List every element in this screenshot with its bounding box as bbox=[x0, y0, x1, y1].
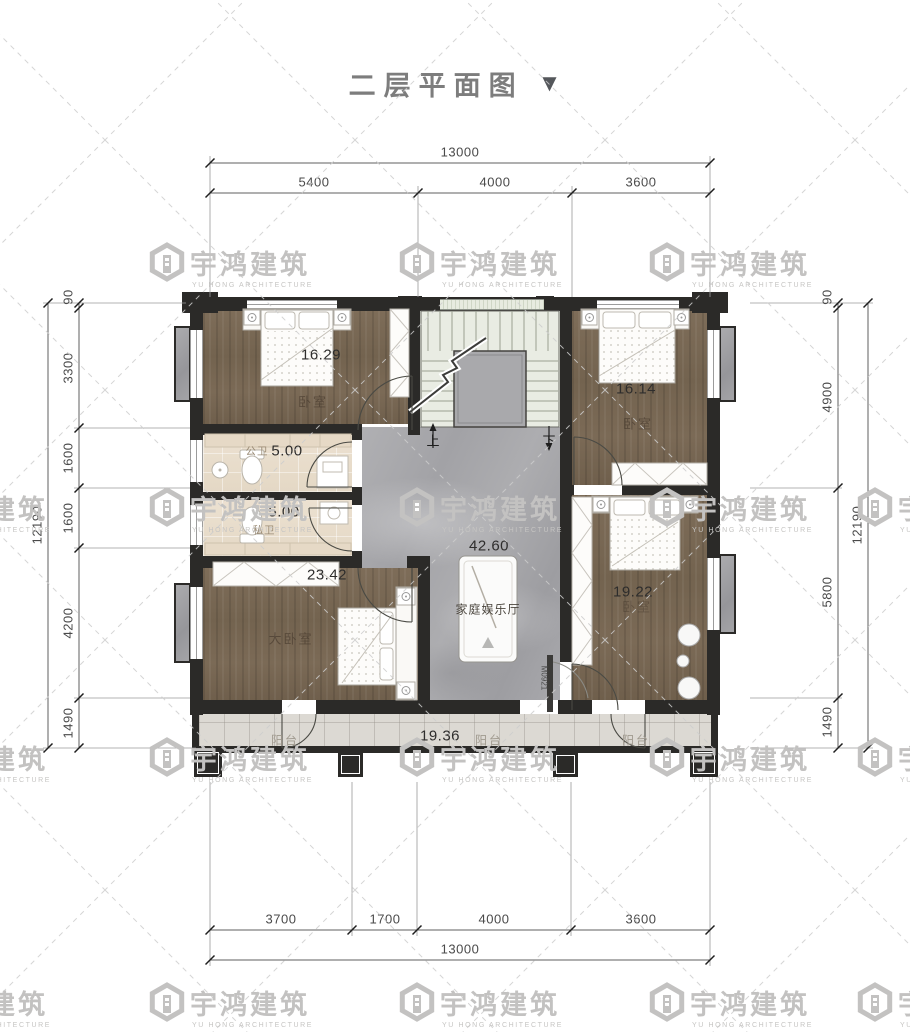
window-right-bedroom-br bbox=[707, 558, 720, 630]
dim-left-seg3: 1600 bbox=[61, 443, 76, 474]
column-2 bbox=[338, 752, 363, 777]
label-family-room: 家庭娱乐厅 bbox=[455, 601, 520, 618]
dim-bottom-seg3: 4000 bbox=[479, 912, 510, 927]
column-1 bbox=[194, 749, 222, 777]
dim-right-seg1: 90 bbox=[820, 289, 835, 304]
dim-left-seg4: 1600 bbox=[61, 503, 76, 534]
dim-top-seg2: 4000 bbox=[480, 175, 511, 190]
label-bedroom-top-left: 卧室 bbox=[298, 392, 328, 411]
dim-left-seg6: 1490 bbox=[61, 708, 76, 739]
dim-right-seg3: 5800 bbox=[820, 577, 835, 608]
wall-bottom-b bbox=[316, 700, 520, 714]
window-bay-left-2 bbox=[174, 583, 191, 663]
dim-bottom-seg2: 1700 bbox=[370, 912, 401, 927]
area-balcony: 19.36 bbox=[420, 728, 460, 745]
wall-bottom-c bbox=[558, 700, 592, 714]
area-public-bath: 5.00 bbox=[271, 443, 302, 460]
dim-left-total: 12190 bbox=[30, 506, 45, 545]
area-bedroom-top-left: 16.29 bbox=[301, 347, 341, 364]
wall-bath-right-a bbox=[352, 424, 362, 440]
label-bedroom-bottom-right: 卧室 bbox=[622, 597, 652, 616]
wall-bottom-a bbox=[190, 700, 282, 714]
label-bedroom-top-right: 卧室 bbox=[623, 414, 653, 433]
label-public-bath: 公卫 bbox=[246, 444, 269, 459]
dim-bottom-seg4: 3600 bbox=[626, 912, 657, 927]
window-top-bedroom-tr bbox=[597, 300, 679, 309]
dim-right-seg2: 4900 bbox=[820, 382, 835, 413]
label-balcony-mid: 阳台 bbox=[475, 732, 503, 749]
wall-master-right bbox=[418, 556, 430, 700]
window-bay-left-1 bbox=[174, 326, 191, 402]
dim-right-seg4: 1490 bbox=[820, 707, 835, 738]
dim-left-seg1: 90 bbox=[61, 289, 76, 304]
wall-bath-right-b bbox=[352, 487, 362, 505]
window-public-bath bbox=[190, 440, 203, 482]
window-private-bath bbox=[190, 505, 203, 545]
dim-left-seg5: 4200 bbox=[61, 608, 76, 639]
wall-bedroomtl-bottom-b bbox=[408, 424, 420, 435]
dim-top-seg1: 5400 bbox=[299, 175, 330, 190]
label-private-bath: 私卫 bbox=[253, 523, 276, 538]
door-opening-bedroom-tr bbox=[574, 485, 622, 495]
window-left-bedroom-tl bbox=[190, 330, 203, 398]
floorplan-page: 二层平面图 ▼ bbox=[0, 0, 910, 1032]
area-bedroom-top-right: 16.14 bbox=[616, 381, 656, 398]
dim-top-seg3: 3600 bbox=[626, 175, 657, 190]
wall-bedroombr-left bbox=[560, 485, 572, 662]
window-bay-right-1 bbox=[719, 326, 736, 402]
window-top-bedroom-tl bbox=[247, 300, 337, 309]
area-private-bath: 5.00 bbox=[268, 504, 299, 521]
area-master-bedroom: 23.42 bbox=[307, 567, 347, 584]
wall-bedroomtl-bottom bbox=[190, 424, 357, 435]
dim-bottom-total: 13000 bbox=[441, 942, 480, 957]
page-title: 二层平面图 bbox=[349, 64, 524, 103]
window-top-stairwell bbox=[440, 299, 544, 310]
floor-stairwell bbox=[420, 309, 560, 429]
wall-bath-divider bbox=[190, 492, 352, 500]
column-3 bbox=[553, 752, 578, 777]
label-master-bedroom: 大卧室 bbox=[268, 629, 313, 648]
wall-pier-top-1 bbox=[398, 296, 422, 311]
window-left-master bbox=[190, 587, 203, 659]
dim-bottom-seg1: 3700 bbox=[266, 912, 297, 927]
window-right-bedroom-tr bbox=[707, 330, 720, 398]
wall-bedroomtl-stairs bbox=[408, 311, 420, 435]
wall-stairs-bedroomtr bbox=[560, 311, 572, 485]
floor-bedroom-top-right bbox=[572, 311, 707, 485]
stairs-down-label: 下 bbox=[542, 431, 555, 450]
stairs-up-label: 上 bbox=[426, 431, 439, 450]
column-4 bbox=[690, 749, 718, 777]
door-code-label: M0921 bbox=[540, 666, 549, 690]
dim-top-total: 13000 bbox=[441, 145, 480, 160]
label-balcony-right: 阳台 bbox=[622, 732, 650, 749]
drawing-title: 二层平面图 ▼ bbox=[349, 64, 562, 103]
dim-left-seg2: 3300 bbox=[61, 353, 76, 384]
window-bay-right-2 bbox=[719, 554, 736, 634]
wall-bottom-d bbox=[645, 700, 707, 714]
area-family-room: 42.60 bbox=[469, 538, 509, 555]
label-balcony-left: 阳台 bbox=[271, 732, 299, 749]
wall-balcony-right bbox=[711, 714, 718, 748]
wall-balcony-left bbox=[192, 714, 199, 748]
triangle-down-icon: ▼ bbox=[538, 72, 562, 96]
dim-right-total: 12190 bbox=[850, 506, 865, 545]
